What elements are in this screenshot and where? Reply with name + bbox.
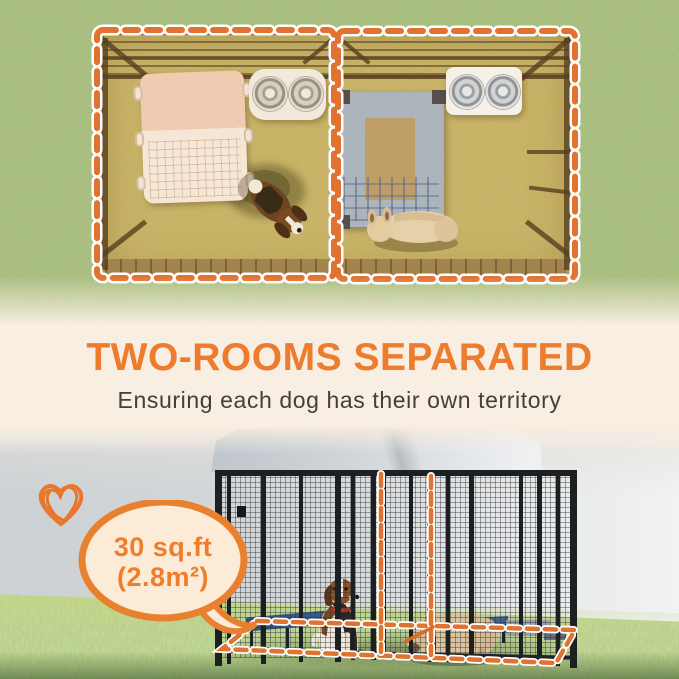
kennel-post xyxy=(381,470,386,660)
bulldog-top-view xyxy=(364,200,464,255)
cream-to-photo-fade xyxy=(0,420,679,454)
area-metric: (2.8m²) xyxy=(78,563,248,593)
gate-beam xyxy=(527,150,571,154)
headline-title: TWO-ROOMS SEPARATED xyxy=(0,336,679,380)
kennel-post xyxy=(409,470,413,660)
area-badge: 30 sq.ft (2.8m²) xyxy=(78,533,248,592)
grass-to-cream-fade xyxy=(0,276,679,332)
mat-handle xyxy=(136,176,146,191)
beagle-top-view xyxy=(230,158,312,246)
kennel-post xyxy=(299,470,303,662)
bed-corner xyxy=(336,90,350,104)
kennel-post xyxy=(351,470,355,660)
frame-beam xyxy=(564,38,570,270)
kennel-post xyxy=(469,470,474,662)
kennel-top-view xyxy=(97,30,575,280)
kennel-post xyxy=(446,470,450,662)
bed-corner xyxy=(432,90,446,104)
kennel-post xyxy=(556,470,560,666)
kennel-post xyxy=(570,470,577,668)
kennel-post xyxy=(537,470,542,664)
product-infographic: TWO-ROOMS SEPARATED Ensuring each dog ha… xyxy=(0,0,679,679)
dog-bowl xyxy=(253,77,287,111)
pet-mat-mesh xyxy=(148,138,242,199)
kennel-post xyxy=(519,470,523,664)
area-value: 30 sq.ft xyxy=(78,533,248,563)
mat-handle xyxy=(135,132,145,147)
double-bowl-feeder-right xyxy=(446,67,522,115)
kennel-front-mesh xyxy=(215,470,577,658)
kennel-post xyxy=(261,470,266,664)
dog-bowl xyxy=(289,77,323,111)
kennel-post xyxy=(371,470,376,660)
headline-section: TWO-ROOMS SEPARATED Ensuring each dog ha… xyxy=(0,331,679,414)
headline-subtitle: Ensuring each dog has their own territor… xyxy=(0,387,679,414)
mat-handle xyxy=(133,86,143,101)
kennel-post xyxy=(427,470,432,662)
product-photo-scene: 30 sq.ft (2.8m²) xyxy=(0,420,679,679)
dog-bowl xyxy=(450,75,484,109)
frame-beam xyxy=(102,38,108,270)
bed-corner xyxy=(336,215,350,229)
aerial-scene xyxy=(0,0,679,332)
mat-handle xyxy=(244,128,254,143)
double-bowl-feeder-left xyxy=(249,69,326,120)
kennel-post xyxy=(335,470,341,662)
dog-bowl xyxy=(486,75,520,109)
